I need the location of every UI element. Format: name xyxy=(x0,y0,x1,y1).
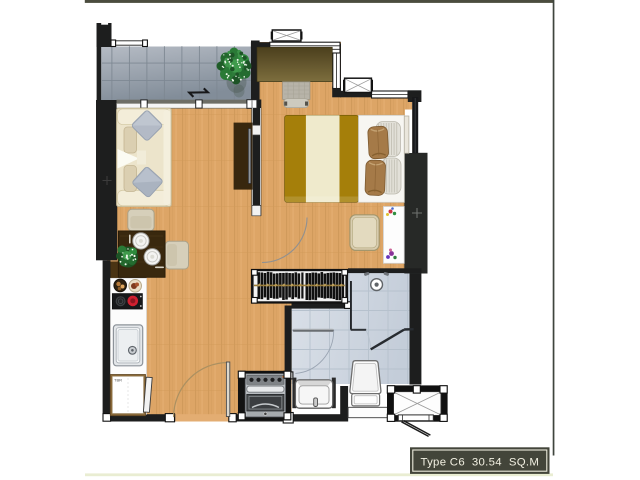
svg-text:TBR: TBR xyxy=(114,378,122,383)
svg-text:Type C6 30.54 SQ.M: Type C6 30.54 SQ.M xyxy=(420,457,539,469)
